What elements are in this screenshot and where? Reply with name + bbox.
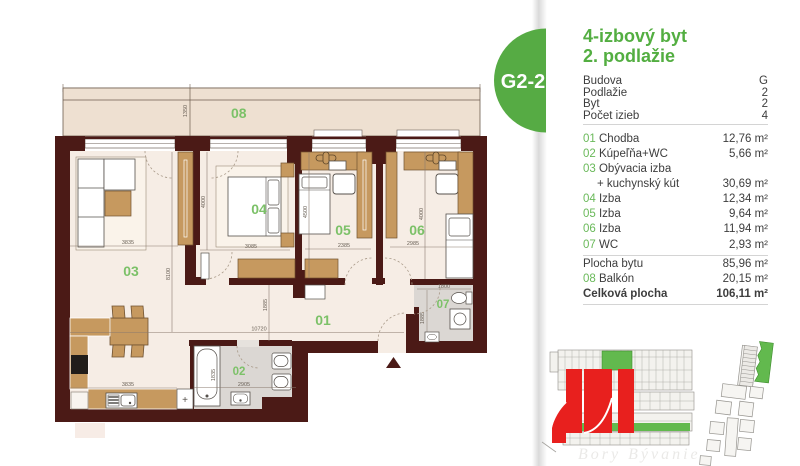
svg-text:4000: 4000 [201,196,207,208]
svg-text:02: 02 [233,366,246,378]
svg-text:08: 08 [231,105,247,121]
svg-text:2905: 2905 [238,382,250,388]
svg-text:01: 01 [315,312,331,328]
svg-text:2385: 2385 [338,243,350,249]
svg-text:3835: 3835 [122,382,134,388]
svg-text:10720: 10720 [251,327,266,333]
svg-text:1835: 1835 [211,369,217,381]
svg-text:04: 04 [251,201,267,217]
svg-text:07: 07 [437,299,450,311]
svg-text:1350: 1350 [183,105,189,117]
svg-text:G2-2: G2-2 [501,71,545,93]
svg-text:3085: 3085 [245,244,257,250]
svg-text:4000: 4000 [419,208,425,220]
svg-text:1885: 1885 [420,312,426,324]
svg-text:3835: 3835 [122,240,134,246]
svg-text:03: 03 [123,263,139,279]
svg-text:05: 05 [335,222,351,238]
svg-text:4500: 4500 [303,206,309,218]
svg-text:8100: 8100 [166,268,172,280]
svg-text:+: + [182,395,188,406]
svg-text:06: 06 [409,222,425,238]
svg-text:Bory Bývanie: Bory Bývanie [578,446,701,463]
svg-text:1885: 1885 [263,299,269,311]
svg-text:2985: 2985 [407,241,419,247]
